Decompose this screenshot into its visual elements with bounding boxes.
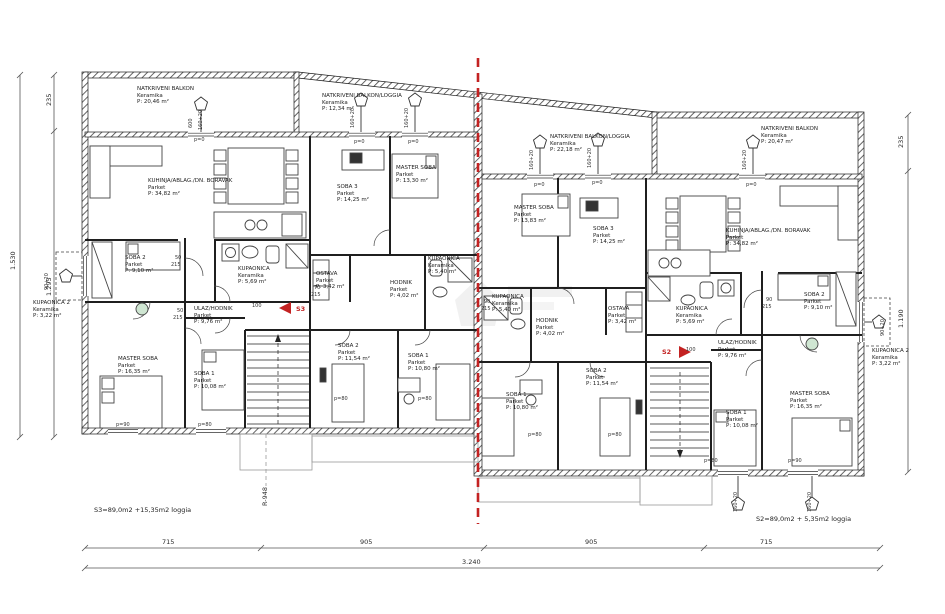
- dimension-label: 235: [898, 136, 905, 148]
- dimension-label: 90+20: [44, 273, 51, 290]
- dimension-label: 215: [762, 304, 772, 311]
- room-area: P: 20,46 m²: [137, 99, 194, 106]
- dimension-label: R-948: [262, 487, 269, 506]
- room-area: P: 5,69 m²: [238, 279, 270, 286]
- room-label-right-ulaz-hodnik: ULAZ/HODNIKParketP: 9,76 m²: [718, 340, 757, 360]
- dimension-label: 100: [686, 347, 696, 354]
- dimension-label: p=80: [528, 432, 542, 439]
- room-label-left-kupaonica: KUPAONICAKeramikaP: 5,40 m²: [428, 256, 460, 276]
- room-area: P: 3,22 m²: [33, 313, 70, 320]
- room-label-right-master-soba: MASTER SOBAParketP: 16,35 m²: [790, 391, 830, 411]
- dimension-label: 905: [360, 539, 372, 546]
- room-area: P: 11,54 m²: [338, 356, 370, 363]
- room-label-right-ostava: OSTAVAParketP: 3,42 m²: [608, 306, 636, 326]
- room-name: KUPAONICA 2: [33, 300, 70, 307]
- room-label-left-soba-3: SOBA 3ParketP: 14,25 m²: [337, 184, 369, 204]
- dimension-label: 905: [585, 539, 597, 546]
- dimension-label: p=0: [354, 139, 365, 146]
- dimension-label: p=80: [198, 422, 212, 429]
- dimension-label: 90: [766, 297, 772, 304]
- dimension-label: 100: [252, 303, 262, 310]
- dimension-label: 215: [171, 262, 181, 269]
- room-area: P: 5,40 m²: [492, 307, 524, 314]
- dimension-label: 1.530: [10, 251, 17, 270]
- room-label-right-soba-1: SOBA 1ParketP: 10,08 m²: [726, 410, 758, 430]
- dimension-label: 215: [311, 292, 321, 299]
- floor-plan-canvas: S3=89,0m2 +15,35m2 loggia S2=89,0m2 + 5,…: [0, 0, 945, 614]
- dimension-label: 235: [46, 94, 53, 106]
- room-label-right-kupaonica: KUPAONICAKeramikaP: 5,69 m²: [676, 306, 708, 326]
- room-label-left-ulaz-hodnik: ULAZ/HODNIKParketP: 9,76 m²: [194, 306, 233, 326]
- room-area: P: 3,42 m²: [608, 319, 636, 326]
- room-label-right-soba-2: SOBA 2ParketP: 9,10 m²: [804, 292, 832, 312]
- dimension-label: 70: [314, 285, 320, 292]
- room-label-left-kuhinja-ablag-dn-boravak: KUHINJA/ABLAG./DN. BORAVAKParketP: 34,82…: [148, 178, 232, 198]
- dimension-label: p=90: [788, 458, 802, 465]
- room-name: MASTER SOBA: [790, 391, 830, 398]
- room-label-right-hodnik: HODNIKParketP: 4,02 m²: [536, 318, 564, 338]
- dimension-label: p=0: [534, 182, 545, 189]
- dimension-label: 600: [188, 118, 195, 128]
- room-area: P: 16,35 m²: [118, 369, 158, 376]
- unit-summary-left: S3=89,0m2 +15,35m2 loggia: [94, 507, 191, 514]
- dimension-label: 715: [162, 539, 174, 546]
- dimension-label: 160+20: [742, 150, 749, 170]
- room-area: P: 5,40 m²: [428, 269, 460, 276]
- dimension-label: 160+20: [198, 110, 205, 130]
- room-name: ULAZ/HODNIK: [194, 306, 233, 313]
- room-name: NATKRIVENI BALKON/LOGGIA: [322, 93, 402, 100]
- room-label-left-hodnik: HODNIKParketP: 4,02 m²: [390, 280, 418, 300]
- room-name: MASTER SOBA: [514, 205, 554, 212]
- room-area: P: 4,02 m²: [390, 293, 418, 300]
- room-name: NATKRIVENI BALKON/LOGGIA: [550, 134, 630, 141]
- room-label-left-soba-1: SOBA 1ParketP: 10,80 m²: [408, 353, 440, 373]
- room-label-left-kupaonica: KUPAONICAKeramikaP: 5,69 m²: [238, 266, 270, 286]
- room-name: NATKRIVENI BALKON: [137, 86, 194, 93]
- room-name: NATKRIVENI BALKON: [761, 126, 818, 133]
- dimension-label: p=0: [194, 137, 205, 144]
- room-label-right-soba-1: SOBA 1ParketP: 10,80 m²: [506, 392, 538, 412]
- dimension-label: 3.240: [462, 559, 481, 566]
- room-label-left-kupaonica-2: KUPAONICA 2KeramikaP: 3,22 m²: [33, 300, 70, 320]
- room-area: P: 4,02 m²: [536, 331, 564, 338]
- dimension-label: 715: [760, 539, 772, 546]
- room-area: P: 9,76 m²: [718, 353, 757, 360]
- unit-summary-right: S2=89,0m2 + 5,35m2 loggia: [756, 516, 851, 523]
- dimension-label: p=90: [116, 422, 130, 429]
- room-area: P: 14,25 m²: [593, 239, 625, 246]
- room-label-right-master-soba: MASTER SOBAParketP: 13,83 m²: [514, 205, 554, 225]
- dimension-label: 160+20: [350, 108, 357, 128]
- room-label-left-natkriveni-balkon: NATKRIVENI BALKONKeramikaP: 20,46 m²: [137, 86, 194, 106]
- room-area: P: 10,80 m²: [408, 366, 440, 373]
- room-label-left-master-soba: MASTER SOBAParketP: 13,30 m²: [396, 165, 436, 185]
- room-area: P: 9,10 m²: [125, 268, 153, 275]
- room-label-left-soba-2: SOBA 2ParketP: 11,54 m²: [338, 343, 370, 363]
- dimension-label: p=80: [418, 396, 432, 403]
- room-name: MASTER SOBA: [118, 356, 158, 363]
- dimension-label: p=80: [704, 458, 718, 465]
- dimension-label: 215: [173, 315, 183, 322]
- room-area: P: 14,25 m²: [337, 197, 369, 204]
- stair-label-left: S3: [296, 306, 305, 313]
- room-label-right-natkriveni-balkon: NATKRIVENI BALKONKeramikaP: 20,47 m²: [761, 126, 818, 146]
- dimension-label: p=0: [592, 180, 603, 187]
- room-area: P: 13,30 m²: [396, 178, 436, 185]
- room-name: MASTER SOBA: [396, 165, 436, 172]
- room-name: KUPAONICA 2: [872, 348, 909, 355]
- dimension-label: 90: [484, 299, 490, 306]
- room-name: KUHINJA/ABLAG./DN. BORAVAK: [726, 228, 810, 235]
- dimension-label: 160+20: [733, 492, 740, 512]
- room-area: P: 16,35 m²: [790, 404, 830, 411]
- room-area: P: 34,82 m²: [148, 191, 232, 198]
- room-area: P: 10,08 m²: [726, 423, 758, 430]
- room-area: P: 20,47 m²: [761, 139, 818, 146]
- room-area: P: 5,69 m²: [676, 319, 708, 326]
- dimension-label: 1.190: [898, 309, 905, 328]
- dimension-label: p=80: [608, 432, 622, 439]
- room-area: P: 10,80 m²: [506, 405, 538, 412]
- room-area: P: 34,82 m²: [726, 241, 810, 248]
- room-label-right-kuhinja-ablag-dn-boravak: KUHINJA/ABLAG./DN. BORAVAKParketP: 34,82…: [726, 228, 810, 248]
- dimension-label: p=0: [408, 139, 419, 146]
- room-label-left-soba-1: SOBA 1ParketP: 10,08 m²: [194, 371, 226, 391]
- room-label-right-kupaonica: KUPAONICAKeramikaP: 5,40 m²: [492, 294, 524, 314]
- dimension-label: 160+20: [587, 148, 594, 168]
- room-label-left-master-soba: MASTER SOBAParketP: 16,35 m²: [118, 356, 158, 376]
- dimension-label: 90+20: [880, 319, 887, 336]
- room-area: P: 9,10 m²: [804, 305, 832, 312]
- room-name: ULAZ/HODNIK: [718, 340, 757, 347]
- room-label-right-soba-3: SOBA 3ParketP: 14,25 m²: [593, 226, 625, 246]
- room-area: P: 9,76 m²: [194, 319, 233, 326]
- room-name: KUPAONICA: [492, 294, 524, 301]
- room-area: P: 3,22 m²: [872, 361, 909, 368]
- room-name: KUPAONICA: [238, 266, 270, 273]
- labels-layer: S3=89,0m2 +15,35m2 loggia S2=89,0m2 + 5,…: [0, 0, 945, 614]
- room-area: P: 13,83 m²: [514, 218, 554, 225]
- dimension-label: 215: [481, 306, 491, 313]
- dimension-label: p=80: [334, 396, 348, 403]
- room-area: P: 10,08 m²: [194, 384, 226, 391]
- stair-label-right: S2: [662, 349, 671, 356]
- room-name: KUPAONICA: [676, 306, 708, 313]
- dimension-label: 50: [177, 308, 183, 315]
- room-label-left-soba-2: SOBA 2ParketP: 9,10 m²: [125, 255, 153, 275]
- dimension-label: 160+20: [807, 492, 814, 512]
- room-name: KUHINJA/ABLAG./DN. BORAVAK: [148, 178, 232, 185]
- dimension-label: p=0: [746, 182, 757, 189]
- dimension-label: 50: [175, 255, 181, 262]
- room-name: KUPAONICA: [428, 256, 460, 263]
- room-area: P: 11,54 m²: [586, 381, 618, 388]
- dimension-label: 160+20: [404, 108, 411, 128]
- room-area: P: 12,34 m²: [322, 106, 402, 113]
- room-label-right-soba-2: SOBA 2ParketP: 11,54 m²: [586, 368, 618, 388]
- dimension-label: 160+20: [529, 150, 536, 170]
- room-label-right-kupaonica-2: KUPAONICA 2KeramikaP: 3,22 m²: [872, 348, 909, 368]
- room-label-left-natkriveni-balkon-loggia: NATKRIVENI BALKON/LOGGIAKeramikaP: 12,34…: [322, 93, 402, 113]
